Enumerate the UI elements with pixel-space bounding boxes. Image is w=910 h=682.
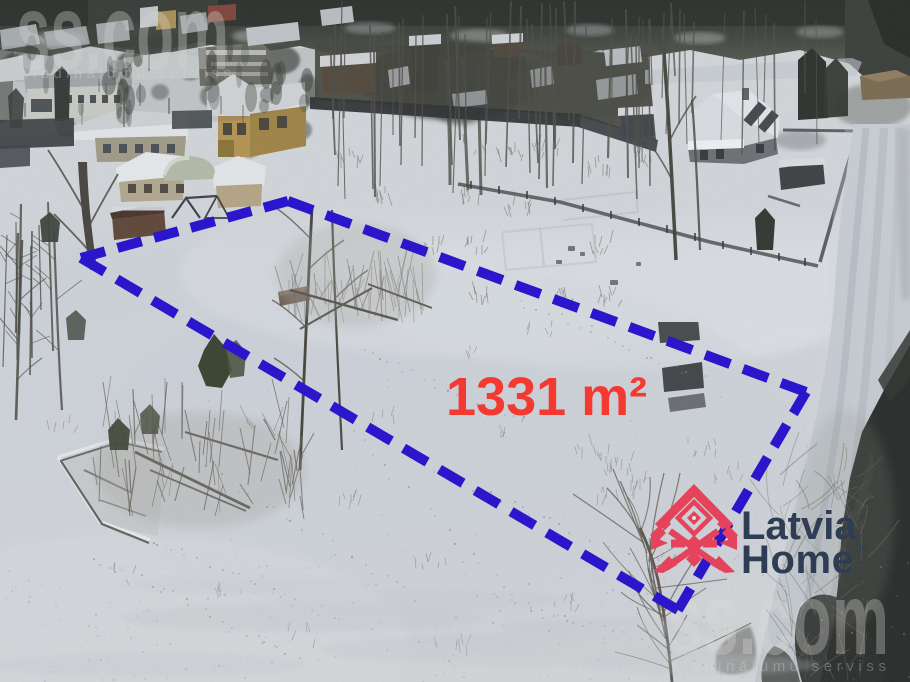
svg-text:Home: Home: [741, 538, 854, 582]
svg-text:1331 m²: 1331 m²: [446, 367, 647, 427]
svg-text:™: ™: [858, 544, 867, 554]
